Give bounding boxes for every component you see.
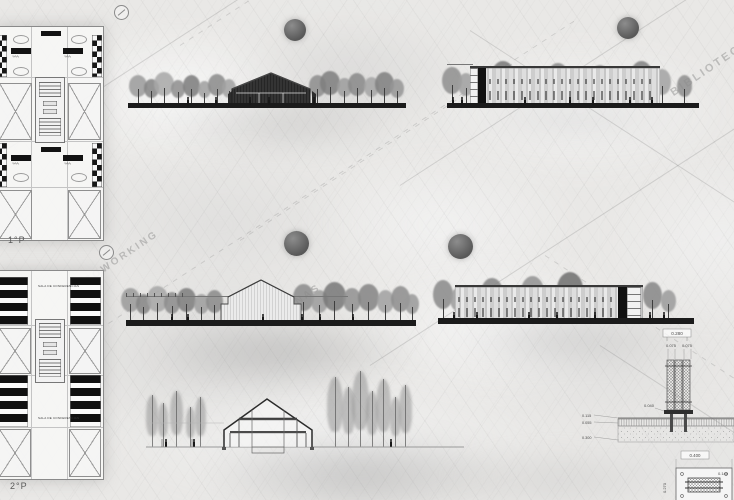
- orientation-marker-icon: [114, 5, 129, 20]
- tree: [129, 75, 147, 105]
- amenity-squiggle-symbol: ∿∿∿: [64, 56, 71, 58]
- window-row: [473, 91, 657, 100]
- room-label-badge: [41, 31, 61, 36]
- plan-room-crossed: [68, 190, 101, 239]
- stair-run: [39, 323, 61, 338]
- ground-line-elevation-c: [126, 320, 416, 326]
- circulation-core: [35, 77, 65, 143]
- core-lift: [43, 109, 57, 114]
- core-lift: [43, 101, 57, 106]
- plan-room-crossed: [0, 328, 31, 374]
- room-label-badge: [63, 155, 83, 161]
- tree: [433, 280, 453, 320]
- room-label-conference-upper: SALA DE CONFERENCIAS: [38, 285, 60, 288]
- room-label-conference-lower: SALA DE CONFERENCIAS: [38, 417, 60, 420]
- furniture-table: [71, 173, 87, 182]
- tree: [375, 72, 394, 105]
- amenity-squiggle-symbol: ∿∿∿: [12, 56, 19, 58]
- level-slab: 0.055: [582, 421, 592, 425]
- stair-checker-strip: [0, 35, 7, 77]
- tree: [377, 290, 394, 322]
- core-lift: [43, 342, 57, 347]
- plan-room-crossed: [0, 429, 31, 477]
- room-label-badge: [11, 48, 31, 54]
- stair-checker-strip: [0, 143, 7, 187]
- room-label-badge: [63, 48, 83, 54]
- dim-post-left: 0.075: [666, 343, 677, 348]
- watercolor-cloud: [300, 150, 580, 300]
- tree: [171, 80, 185, 105]
- plan-dim-height: 0.140: [718, 471, 729, 476]
- stair-checker-strip: [92, 35, 102, 77]
- elevation-dark-barn: [222, 60, 318, 106]
- furniture-table: [13, 67, 29, 76]
- plan-grid-line: [0, 427, 103, 428]
- ground-line-elevation-d: [438, 318, 694, 324]
- level-screed: 0.115: [582, 414, 591, 418]
- elevation-light-gable-hall: [218, 276, 304, 322]
- tree: [358, 284, 379, 322]
- site-construction-line: [180, 0, 684, 46]
- orientation-marker-icon: [99, 245, 114, 260]
- background-label-biblioteca: BIBLIOTECA: [669, 37, 734, 99]
- amenity-squiggle-symbol: ∿∿∿: [64, 163, 71, 165]
- floor-plan-level-2: SALA DE CONFERENCIAS SALA DE CONFERENCIA…: [0, 270, 104, 480]
- furniture-table: [13, 35, 29, 44]
- louvre-bars-block: [0, 375, 28, 427]
- amenity-squiggle-symbol: ∿∿∿: [12, 163, 19, 165]
- furniture-table: [71, 67, 87, 76]
- tree: [323, 282, 346, 322]
- plan-room-crossed: [0, 83, 32, 140]
- site-construction-line: [470, 30, 734, 238]
- elevation-striped-building-top: [470, 66, 660, 107]
- level-foundation: 0.300: [582, 436, 592, 440]
- tree: [405, 294, 419, 322]
- louvre-bars-block: [0, 277, 28, 325]
- datum-tick-marks: [126, 293, 188, 297]
- window-row: [458, 308, 640, 317]
- tree: [198, 81, 211, 105]
- dim-column-overall: 0.280: [671, 331, 683, 336]
- ground-line-elevation-b: [447, 103, 699, 108]
- plan-grid-line: [0, 187, 103, 188]
- floor-plan-level-1: ∿∿∿ ∿∿∿ ∿∿∿ ∿∿∿: [0, 26, 104, 241]
- plan2-caption: 2°P: [10, 481, 28, 491]
- sun-marker-icon: [284, 19, 306, 41]
- tree: [391, 286, 410, 322]
- tree: [144, 79, 159, 105]
- stair-run: [39, 118, 61, 136]
- plan-room-crossed: [69, 328, 101, 374]
- architecture-presentation-board: BIBLIOTECA COWORKING OFICINAS ∿∿∿ ∿∿∿ ∿∿…: [0, 0, 734, 500]
- datum-line: [447, 64, 473, 65]
- tree: [643, 282, 662, 320]
- sun-marker-icon: [448, 234, 473, 259]
- stair-checker-strip: [92, 143, 102, 187]
- sun-marker-icon: [284, 231, 309, 256]
- dim-base-plate: 0.040: [644, 403, 655, 408]
- construction-detail: 0.280 0.075 0.075 0.040 0.115 0.055 0.30…: [578, 328, 734, 500]
- plan-dim-depth: 0.270: [662, 482, 667, 493]
- tree: [348, 73, 366, 105]
- window-row: [458, 297, 640, 302]
- plan-room-crossed: [0, 190, 32, 239]
- building-section: [140, 355, 470, 455]
- window-row: [473, 79, 657, 84]
- tree: [337, 78, 352, 105]
- room-label-badge: [11, 155, 31, 161]
- furniture-table: [13, 173, 29, 182]
- sun-marker-icon: [617, 17, 639, 39]
- tree: [136, 294, 151, 322]
- open-frame-bay: [470, 68, 478, 107]
- room-label-badge: [41, 147, 61, 152]
- tree: [154, 72, 174, 105]
- tree: [390, 79, 404, 105]
- plan-room-crossed: [68, 83, 101, 140]
- plan1-caption: 1°P: [8, 235, 26, 245]
- tree: [442, 67, 462, 105]
- plan-room-crossed: [69, 429, 101, 477]
- entrance-slot: [478, 68, 486, 107]
- tree: [320, 71, 340, 105]
- tree: [343, 288, 361, 322]
- watercolor-cloud: [420, 40, 734, 180]
- plan-dim-width: 0.400: [690, 453, 702, 458]
- circulation-core: [35, 319, 65, 383]
- ground-line-elevation-a: [128, 103, 406, 108]
- tree: [364, 77, 379, 105]
- tree: [661, 290, 676, 320]
- tree: [147, 286, 168, 322]
- core-lift: [43, 350, 57, 355]
- stair-run: [39, 82, 61, 97]
- tree: [194, 294, 209, 322]
- furniture-table: [71, 35, 87, 44]
- dim-post-right: 0.075: [682, 343, 693, 348]
- stair-run: [39, 359, 61, 377]
- tree: [183, 75, 200, 105]
